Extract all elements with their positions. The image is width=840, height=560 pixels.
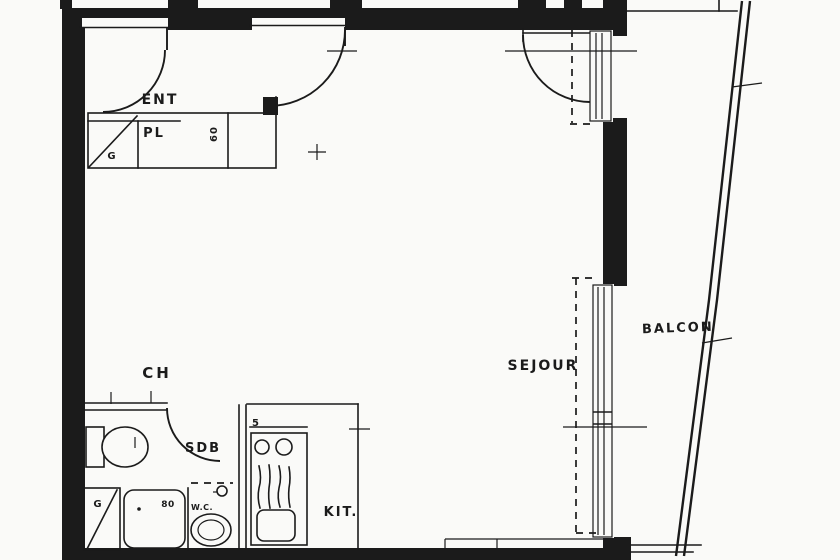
burner: [276, 439, 292, 455]
drainer-line: [269, 465, 270, 508]
vent-symbol: [217, 486, 227, 496]
wall-stub: [518, 0, 546, 9]
railing-joint: [732, 83, 762, 87]
label-bedroom: CH: [142, 364, 172, 382]
floor-plan-svg: ENT PL 60 G CH SDB 80 W.C. G KIT. 5 SEJO…: [0, 0, 840, 560]
label-balcony: BALCON: [642, 320, 714, 337]
kitchen: [247, 404, 370, 548]
label-kitchen: KIT.: [324, 505, 359, 520]
shower-drain: [137, 507, 141, 511]
balcony-railing-inner: [676, 1, 742, 556]
label-duct-top: G: [107, 151, 116, 162]
sink: [257, 510, 295, 541]
drainer-line: [278, 466, 280, 507]
windows: [589, 30, 614, 538]
doors: [103, 27, 637, 124]
left-wall: [62, 28, 85, 557]
label-kitchen-mark: 5: [252, 418, 260, 429]
label-wc: W.C.: [191, 503, 213, 512]
wall-stub: [564, 0, 582, 9]
washbasin: [102, 427, 148, 467]
balcony: [627, 0, 762, 556]
drainer-line: [289, 467, 290, 507]
floor-plan-page: ENT PL 60 G CH SDB 80 W.C. G KIT. 5 SEJO…: [0, 0, 840, 560]
label-closet-depth: 60: [209, 126, 220, 142]
right-wall-mid: [603, 118, 627, 286]
top-wall-opening-entry: [82, 18, 168, 32]
living-room: [445, 278, 647, 548]
burner: [255, 440, 269, 454]
bathroom: [84, 391, 246, 550]
right-wall-bottom-corner: [603, 537, 631, 560]
lower-window-blank: [592, 284, 614, 538]
label-duct-bottom: G: [93, 499, 102, 510]
drainer-line: [258, 466, 260, 508]
balcony-door-arc: [523, 35, 590, 102]
wall-stub: [60, 0, 72, 9]
wall-stub: [330, 0, 362, 9]
bottom-wall: [62, 548, 630, 560]
railing-joint: [702, 338, 732, 343]
label-entry: ENT: [142, 92, 179, 108]
label-shower-dim: 80: [161, 500, 175, 510]
toilet: [191, 514, 231, 546]
hall-door-arc: [269, 30, 345, 106]
balcony-railing-outer: [684, 1, 750, 556]
label-closet: PL: [143, 126, 165, 141]
wall-stub: [168, 0, 198, 9]
shower-tray: [124, 490, 185, 548]
label-living-room: SEJOUR: [508, 358, 579, 374]
upper-window-blank: [589, 30, 613, 122]
label-bathroom: SDB: [185, 441, 221, 456]
